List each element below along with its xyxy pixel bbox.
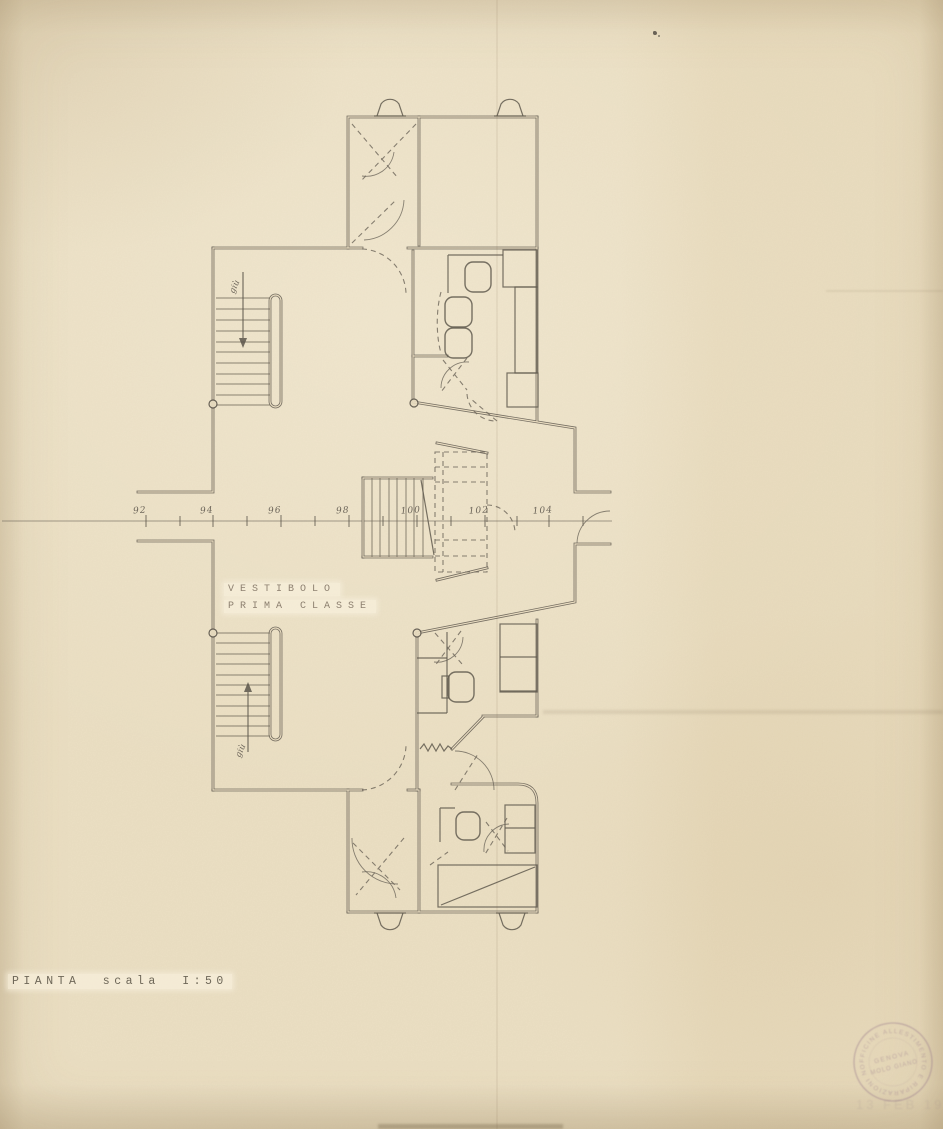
- ink-speck: [658, 35, 660, 37]
- paper-grain: [0, 0, 943, 1129]
- drawing-sheet: 92 94 96 98 100 102 104: [0, 0, 943, 1129]
- scale-caption: PIANTA scala I:50: [8, 974, 232, 989]
- room-label-line1: VESTIBOLO: [224, 583, 340, 596]
- floor-plan-drawing: 92 94 96 98 100 102 104: [0, 0, 943, 1129]
- paper-fold-horizontal: [543, 710, 943, 714]
- paper-edge-smudge: [378, 1124, 563, 1129]
- room-label-line2: PRIMA CLASSE: [224, 600, 376, 613]
- paper-fold-vertical: [496, 0, 498, 1129]
- ink-speck: [653, 31, 657, 35]
- paper-crease: [826, 290, 943, 292]
